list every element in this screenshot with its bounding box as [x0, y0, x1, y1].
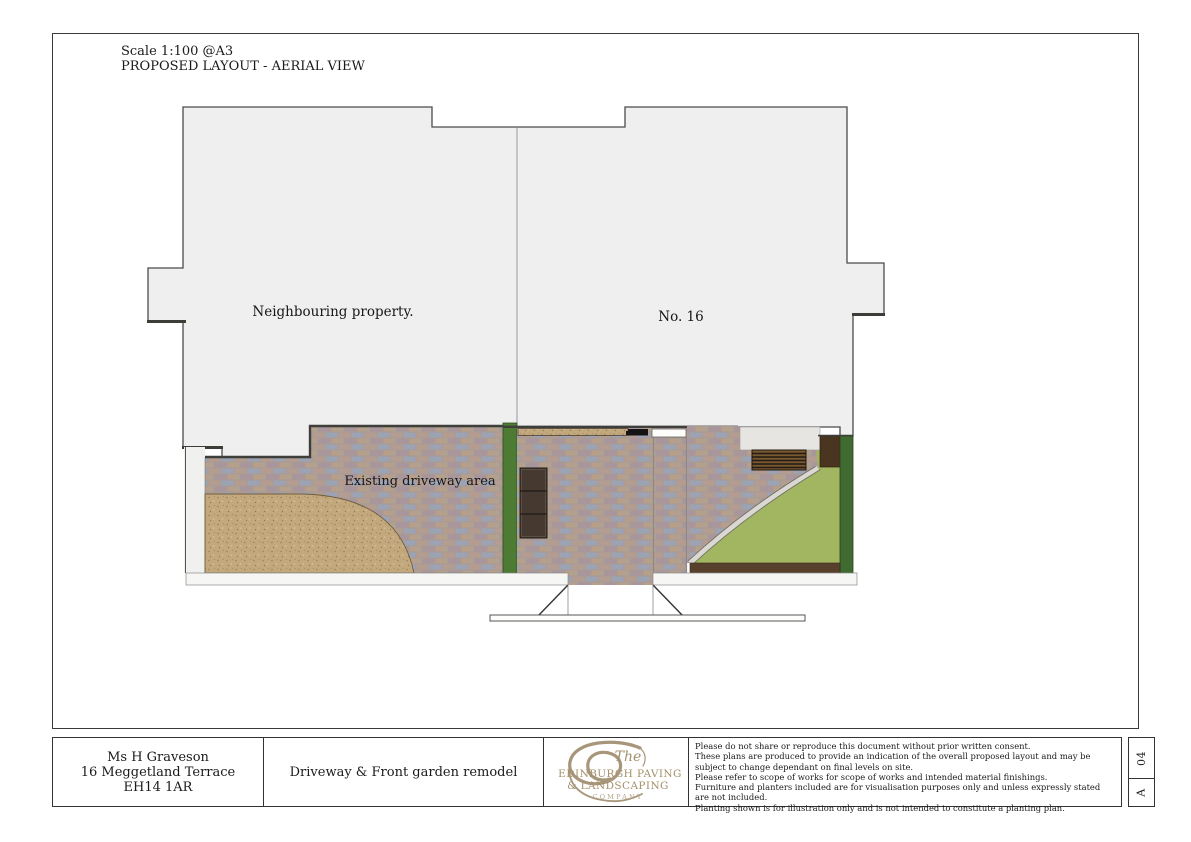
gravel-border-strip [518, 429, 628, 436]
left-boundary-strip [184, 447, 205, 573]
hedge-strip-left [503, 423, 517, 573]
building-footprint [148, 107, 884, 458]
logo-line1: EDINBURGH PAVING [558, 768, 682, 780]
soil-bed-corner [820, 436, 840, 467]
front-path-paving [653, 426, 687, 573]
company-logo: The EDINBURGH PAVING & LANDSCAPING COMPA… [544, 738, 689, 806]
door-mat-notch [626, 431, 631, 435]
revision-box: 04 A [1128, 737, 1155, 807]
client-address-line2: EH14 1AR [124, 780, 193, 795]
disclaimer-line: Planting shown is for illustration only … [695, 803, 1065, 813]
logo-line2: & LANDSCAPING [567, 780, 669, 792]
driveway-entrance-paving [568, 573, 653, 585]
doorstep [652, 429, 686, 437]
plan-sheet: Scale 1:100 @A3 PROPOSED LAYOUT - AERIAL… [0, 0, 1191, 842]
hedge-strip-right [840, 436, 853, 575]
project-title: Driveway & Front garden remodel [290, 765, 518, 780]
sheet-number: 04 [1135, 751, 1148, 766]
disclaimer-line: Please refer to scope of works for scope… [695, 772, 1047, 782]
client-name: Ms H Graveson [107, 750, 209, 765]
title-block: Ms H Graveson 16 Meggetland Terrace EH14… [52, 737, 1122, 807]
disclaimer-line: Please do not share or reproduce this do… [695, 741, 1031, 751]
logo-line3: COMPANY [592, 793, 643, 801]
no16-label: No. 16 [658, 309, 703, 325]
plan-drawing: Neighbouring property. No. 16 Existing d… [0, 0, 1191, 842]
pavement-left [186, 573, 568, 585]
dropped-kerb-left-flare [538, 585, 568, 616]
disclaimer-cell: Please do not share or reproduce this do… [689, 738, 1121, 806]
sheet-number-cell: 04 [1129, 738, 1154, 779]
patio-area [740, 427, 820, 450]
planters [520, 468, 547, 538]
road-kerb-line [490, 615, 805, 621]
existing-driveway-label: Existing driveway area [344, 474, 496, 489]
client-info-cell: Ms H Graveson 16 Meggetland Terrace EH14… [53, 738, 264, 806]
pavement-right [653, 573, 857, 585]
disclaimer-line: These plans are produced to provide an i… [695, 751, 1115, 772]
dropped-kerb-right-flare [653, 585, 683, 616]
disclaimer-line: Furniture and planters included are for … [695, 782, 1115, 803]
garden-bench [752, 450, 806, 470]
logo-the: The [614, 749, 641, 765]
company-logo-cell: The EDINBURGH PAVING & LANDSCAPING COMPA… [544, 738, 689, 806]
revision-letter: A [1135, 788, 1148, 796]
revision-letter-cell: A [1129, 779, 1154, 806]
neighbouring-property-label: Neighbouring property. [252, 304, 413, 320]
client-address-line1: 16 Meggetland Terrace [81, 765, 235, 780]
project-title-cell: Driveway & Front garden remodel [264, 738, 544, 806]
